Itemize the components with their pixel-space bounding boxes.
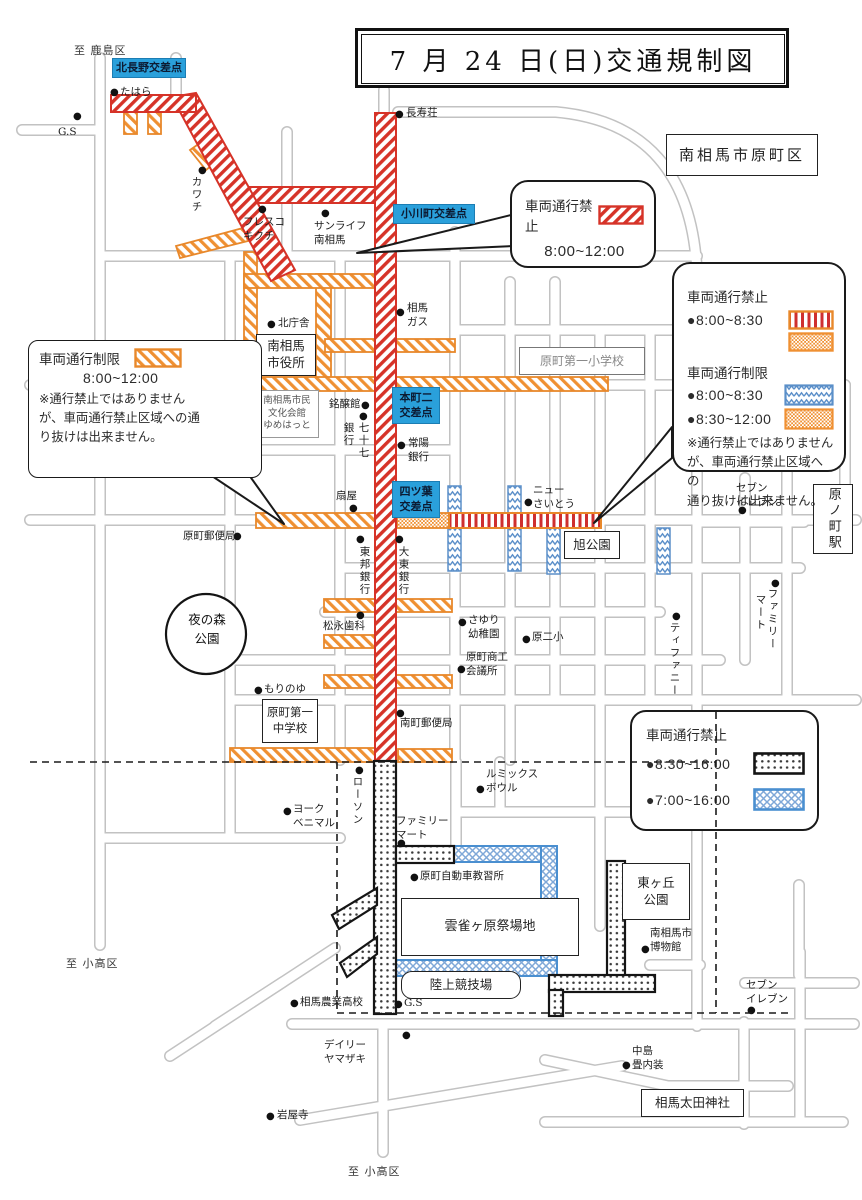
poi-dot-icon: ● [396,308,405,318]
poi-label: 相馬 ガス [407,302,428,329]
swatch-orange-diagonal-hatch [134,348,182,368]
map-title: 7 月 24 日(日)交通規制図 [361,34,785,84]
place-box: 南相馬 市役所 [256,334,316,376]
poi-label: 松永歯科 [323,620,365,634]
poi-dot-icon: ● [359,412,368,422]
area-direction-label: 至 小高区 [348,1163,401,1179]
poi-dot-icon: ● [73,112,82,122]
callout-restrict-8-12: 車両通行制限 8:00~12:00 ※通行禁止ではありません が、車両通行禁止区… [28,340,262,478]
legend-right-restrict-title: 車両通行制限 [687,362,834,382]
poi-dot-icon: ● [361,401,370,411]
poi-label: ニュー さいとう [533,484,575,511]
place-box: 雲雀ヶ原祭場地 [401,898,579,956]
place-box: 陸上競技場 [401,971,521,999]
place-box: 原町第一小学校 [519,347,645,375]
poi-dot-icon: ● [395,535,404,545]
poi-label: たはら [120,86,152,100]
poi-label: 南相馬市 博物館 [650,927,692,954]
poi-dot-icon: ● [283,807,292,817]
poi-label: 岩屋寺 [277,1109,309,1123]
poi-dot-icon: ● [356,535,365,545]
poi-label: 扇屋 [336,490,357,504]
poi-label: 原二小 [532,631,564,645]
callout-top-time: 8:00~12:00 [525,243,644,260]
poi-label: 南町郵便局 [400,717,453,731]
place-box: 南相馬市原町区 [666,134,818,176]
place-box: 原町第一 中学校 [262,699,318,743]
poi-dot-icon: ● [349,504,358,514]
intersection-label: 四ツ葉 交差点 [392,481,440,518]
poi-label: セブン イレブン [746,979,788,1006]
poi-label: 原町商工 会議所 [466,651,508,678]
poi-label: 常陽 銀行 [408,437,429,464]
poi-label: 銀行 [342,422,354,447]
poi-dot-icon: ● [355,766,364,776]
place-box: 旭公園 [564,531,620,559]
poi-label: 七十七 [357,422,369,460]
poi-label: もりのゆ [264,683,306,697]
poi-dot-icon: ● [397,441,406,451]
legend-bottom-title: 車両通行禁止 [646,724,805,744]
poi-label: フレスコ キクチ [243,216,285,243]
poi-label: 中島 畳内装 [632,1045,664,1072]
poi-label: ヨーク ベニマル [293,803,335,830]
legend-right-restrict-time1: ●8:00~8:30 [687,387,763,403]
poi-label: 東邦銀行 [358,546,370,596]
poi-label: ファミリー [766,588,778,651]
swatch-red-vertical-stripes [788,310,834,330]
poi-dot-icon: ● [290,999,299,1009]
poi-dot-icon: ● [266,1112,275,1122]
callout-left-label: 車両通行制限 [39,348,120,368]
callout-top-label: 車両通行禁止 [525,195,598,235]
intersection-label: 本町二 交差点 [392,387,440,424]
poi-label: ローソン [351,776,363,826]
poi-dot-icon: ● [641,945,650,955]
poi-dot-icon: ● [522,635,531,645]
poi-dot-icon: ● [395,110,404,120]
poi-dot-icon: ● [747,1006,756,1016]
poi-dot-icon: ● [672,612,681,622]
poi-label: 銘醸館 [329,398,361,412]
poi-label: さゆり 幼稚園 [468,614,500,641]
poi-dot-icon: ● [622,1061,631,1071]
poi-dot-icon: ● [402,1031,411,1041]
poi-label: 相馬農業高校 [300,996,363,1010]
swatch-blue-crosshatch [753,788,805,811]
legend-right-prohibit-title: 車両通行禁止 [687,286,834,306]
yonomori-park-label: 夜の森 公園 [178,611,236,649]
swatch-orange-dots-2 [784,408,834,430]
place-box: 相馬太田神社 [641,1089,744,1117]
poi-label: デイリー ヤマザキ [324,1039,366,1066]
poi-label: カワチ [190,176,202,214]
poi-dot-icon: ● [198,166,207,176]
callout-prohibit-8-12: 車両通行禁止 8:00~12:00 [510,180,656,268]
poi-dot-icon: ● [524,498,533,508]
legend-right-prohibit-time: ●8:00~8:30 [687,312,763,328]
poi-dot-icon: ● [476,785,485,795]
poi-label: G.S [58,126,77,140]
poi-dot-icon: ● [267,320,276,330]
swatch-blue-zigzag [784,384,834,406]
poi-label: ファミリー マート [396,815,449,842]
legend-festival-rules: 車両通行禁止 ●8:30~16:00 ●7:00~16:00 [630,710,819,831]
map-canvas [0,0,862,1200]
poi-label: 長寿荘 [406,107,438,121]
poi-label: 原町自動車教習所 [420,870,504,884]
poi-dot-icon: ● [410,873,419,883]
intersection-label: 小川町交差点 [393,204,475,224]
swatch-orange-dots [788,332,834,352]
legend-morning-rules: 車両通行禁止 ●8:00~8:30 車両通行制限 ●8:00~8:30 ●8:3… [672,262,846,472]
poi-label: マート [754,594,766,632]
callout-left-time: 8:00~12:00 [83,370,251,386]
poi-label: G.S [404,997,423,1011]
poi-label: ティファニー [668,622,680,697]
legend-right-restrict-time2: ●8:30~12:00 [687,411,771,427]
poi-label: 原町郵便局 [183,530,236,544]
legend-right-note: ※通行禁止ではありません が、車両通行禁止区域への 通り抜けは出来ません。 [687,434,834,511]
poi-label: ルミックス ボウル [486,768,538,795]
poi-dot-icon: ● [458,618,467,628]
poi-dot-icon: ● [110,88,119,98]
poi-dot-icon: ● [457,665,466,675]
place-box: 東ヶ丘 公園 [622,863,690,920]
prohibited-red-stripe-road [449,513,601,528]
traffic-regulation-map: 7 月 24 日(日)交通規制図 北長野交差点小川町交差点本町二 交差点四ツ葉 … [0,0,862,1200]
poi-label: 大東銀行 [397,546,409,596]
area-direction-label: 至 鹿島区 [74,42,127,58]
legend-bottom-time2: ●7:00~16:00 [646,792,730,808]
poi-dot-icon: ● [321,209,330,219]
place-box: 南相馬市民 文化会館 ゆめはっと [255,390,319,438]
poi-dot-icon: ● [258,205,267,215]
intersection-label: 北長野交差点 [112,58,186,78]
poi-dot-icon: ● [394,1000,403,1010]
swatch-black-dots [753,752,805,775]
poi-dot-icon: ● [254,686,263,696]
poi-label: 北庁舎 [278,317,310,331]
swatch-red-diagonal-hatch [598,205,644,225]
title-box: 7 月 24 日(日)交通規制図 [355,28,789,88]
area-direction-label: 至 小高区 [66,955,119,971]
legend-bottom-time1: ●8:30~16:00 [646,756,730,772]
poi-label: サンライフ 南相馬 [314,220,367,247]
callout-left-note: ※通行禁止ではありません が、車両通行禁止区域への通 り抜けは出来ません。 [39,390,251,448]
